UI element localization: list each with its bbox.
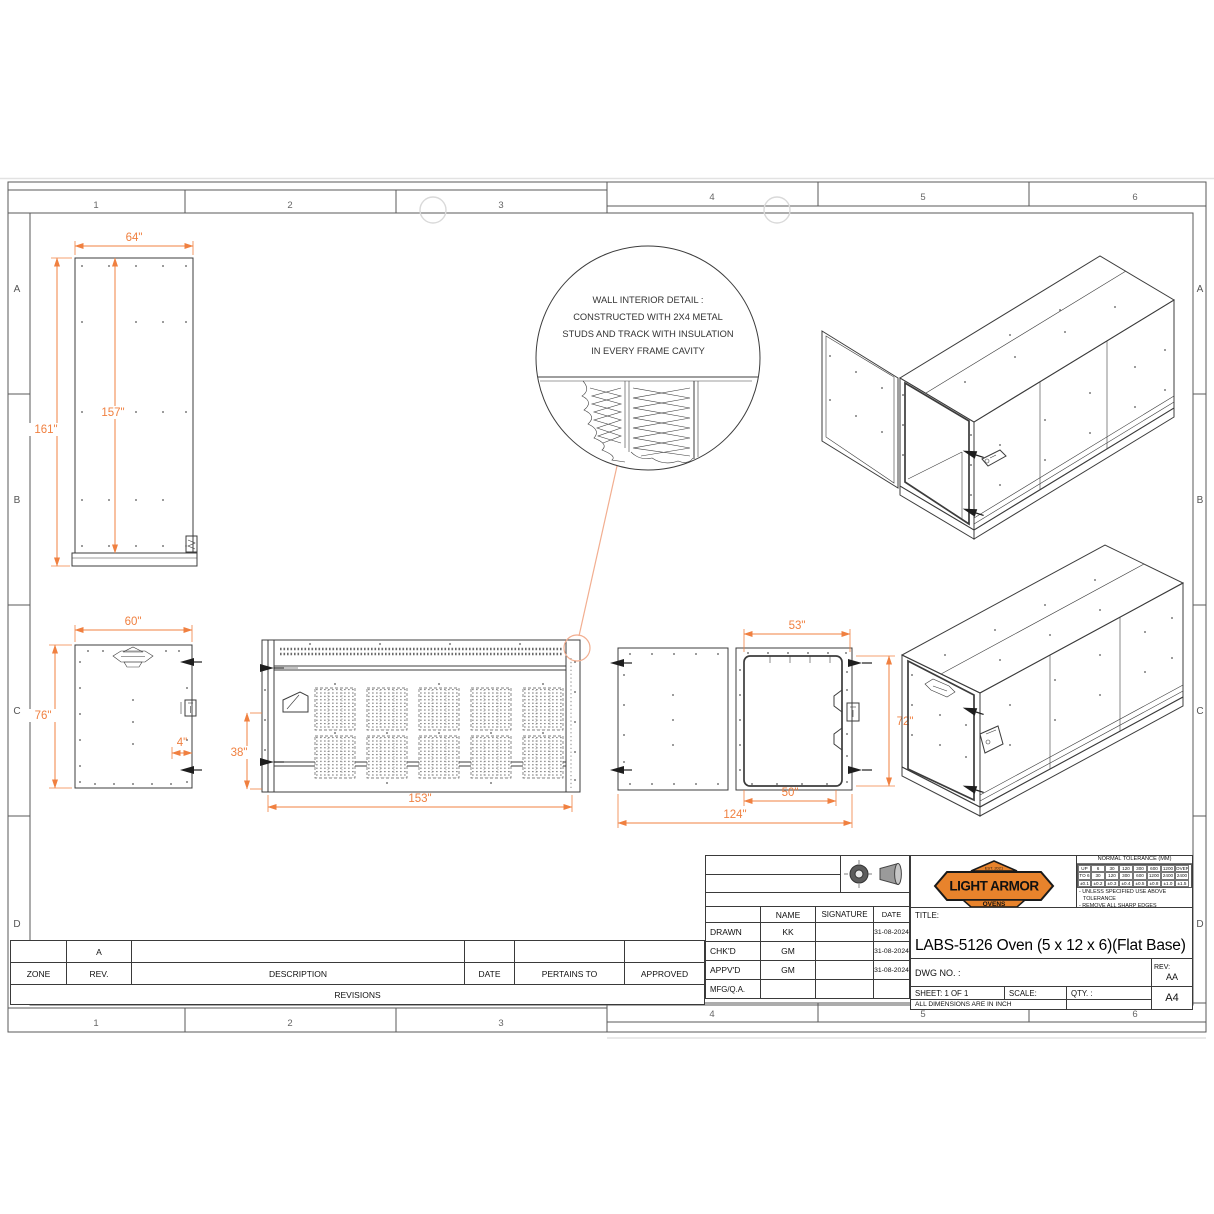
rev-row-zone bbox=[10, 940, 67, 963]
dim-side-height-inner: 157" bbox=[101, 407, 124, 419]
logo-est-text: EST. 2021 bbox=[984, 865, 1003, 870]
drawing-sheet: 1 2 3 4 5 6 1 2 3 4 5 6 A B C D A B C D bbox=[0, 0, 1214, 1214]
zone-top-4: 4 bbox=[709, 192, 714, 203]
rev-label: REV: bbox=[1152, 964, 1170, 971]
plan-view: 53" 72" 50" 124" bbox=[610, 620, 913, 828]
zone-top-2: 2 bbox=[287, 200, 292, 211]
dims-note-cell: ALL DIMENSIONS ARE IN INCH bbox=[910, 999, 1067, 1010]
tolerance-cell: NORMAL TOLERANCE (MM) UP6301203006001200… bbox=[1076, 855, 1193, 908]
zone-bottom-6: 6 bbox=[1132, 1009, 1137, 1020]
row-right-c: C bbox=[1196, 706, 1203, 717]
rev-header-zone: ZONE bbox=[10, 962, 67, 985]
approval-row-date: 31-08-2024 bbox=[873, 941, 910, 961]
dim-door-height: 76" bbox=[35, 710, 52, 722]
hinge bbox=[180, 766, 202, 774]
dwg-no-cell: DWG NO. : bbox=[910, 958, 1152, 987]
logo-cell: EST. 2021 LIGHT ARMOR OVENS bbox=[910, 855, 1077, 908]
drawing-canvas: 1 2 3 4 5 6 1 2 3 4 5 6 A B C D A B C D bbox=[0, 0, 1214, 1214]
approvals-empty-1 bbox=[705, 855, 841, 875]
approvals-header-blank bbox=[705, 906, 761, 923]
rev-header-description: DESCRIPTION bbox=[131, 962, 465, 985]
approval-row-signature bbox=[815, 960, 874, 980]
row-left-d: D bbox=[13, 919, 20, 930]
dim-door-inset: 4" bbox=[177, 737, 187, 749]
row-right-b: B bbox=[1197, 495, 1204, 506]
row-left-c: C bbox=[13, 706, 20, 717]
approval-row-label: CHK'D bbox=[705, 941, 761, 961]
title-label: TITLE: bbox=[915, 911, 939, 920]
rivet-dots bbox=[829, 306, 1166, 496]
tolerance-title: NORMAL TOLERANCE (MM) bbox=[1077, 856, 1192, 864]
light-armor-ovens-logo: EST. 2021 LIGHT ARMOR OVENS bbox=[919, 857, 1069, 907]
detail-text-4: IN EVERY FRAME CAVITY bbox=[591, 346, 705, 356]
approvals-empty-2 bbox=[705, 874, 841, 893]
detail-leader-line bbox=[579, 466, 617, 636]
zone-bottom-4: 4 bbox=[709, 1009, 714, 1020]
door-end-view: 60" 76" 4" bbox=[28, 616, 202, 788]
rivet-dots bbox=[911, 579, 1173, 758]
detail-callout-circle bbox=[564, 635, 590, 661]
scan-hole bbox=[764, 197, 790, 223]
row-left-a: A bbox=[14, 284, 21, 295]
rev-header-pertains: PERTAINS TO bbox=[514, 962, 625, 985]
hinge bbox=[260, 758, 284, 766]
dim-plan-door-top: 53" bbox=[789, 620, 806, 632]
approval-row-name: GM bbox=[760, 941, 816, 961]
dims-note-empty bbox=[1066, 999, 1152, 1010]
rev-value: AA bbox=[1166, 972, 1178, 982]
hinge bbox=[610, 659, 632, 667]
rivet-dots bbox=[79, 650, 188, 785]
zone-top-6: 6 bbox=[1132, 192, 1137, 203]
rev-row-rev: A bbox=[66, 940, 132, 963]
approval-row-signature bbox=[815, 941, 874, 961]
door-dimensions: 60" 76" 4" bbox=[28, 616, 192, 788]
iso-latch bbox=[982, 450, 1006, 466]
revisions-footer: REVISIONS bbox=[10, 984, 705, 1005]
hinge bbox=[961, 505, 984, 519]
scan-hole bbox=[420, 197, 446, 223]
zone-top-5: 5 bbox=[920, 192, 925, 203]
approvals-header-date: DATE bbox=[873, 906, 910, 923]
side-latch bbox=[186, 536, 197, 552]
zone-bottom-1: 1 bbox=[93, 1018, 98, 1029]
rev-header-rev: REV. bbox=[66, 962, 132, 985]
detail-text-1: WALL INTERIOR DETAIL : bbox=[593, 295, 704, 305]
rev-row-date bbox=[464, 940, 515, 963]
rev-row-description bbox=[131, 940, 465, 963]
drawing-title: LABS-5126 Oven (5 x 12 x 6)(Flat Base) bbox=[915, 937, 1186, 955]
zone-bottom-3: 3 bbox=[498, 1018, 503, 1029]
dim-plan-width: 124" bbox=[723, 809, 746, 821]
iso-latch bbox=[980, 726, 1003, 753]
title-cell: TITLE: LABS-5126 Oven (5 x 12 x 6)(Flat … bbox=[910, 907, 1193, 959]
third-angle-projection-icon bbox=[842, 857, 908, 891]
dim-plan-height: 72" bbox=[897, 716, 914, 728]
approval-row-label: MFG/Q.A. bbox=[705, 979, 761, 999]
approval-row-name: KK bbox=[760, 922, 816, 942]
open-door-panel bbox=[822, 331, 898, 488]
approval-row-date: 31-08-2024 bbox=[873, 960, 910, 980]
tolerance-notes: - UNLESS SPECIFIED USE ABOVE TOLERANCE -… bbox=[1077, 888, 1193, 908]
rev-header-date: DATE bbox=[464, 962, 515, 985]
zone-top-1: 1 bbox=[93, 200, 98, 211]
dim-front-width: 153" bbox=[408, 793, 431, 805]
hinge bbox=[260, 664, 284, 672]
plan-dimensions: 53" 72" 50" 124" bbox=[618, 620, 913, 828]
row-left-b: B bbox=[14, 495, 21, 506]
approval-row-signature bbox=[815, 922, 874, 942]
zone-top-3: 3 bbox=[498, 200, 503, 211]
detail-text-2: CONSTRUCTED WITH 2X4 METAL bbox=[573, 312, 723, 322]
dim-plan-door-bottom: 50" bbox=[782, 787, 799, 799]
qty-cell: QTY. : bbox=[1066, 986, 1152, 1000]
door-notch bbox=[834, 728, 842, 750]
projection-symbol-cell bbox=[840, 855, 910, 893]
badge-outline bbox=[113, 647, 153, 667]
hinge bbox=[610, 766, 632, 774]
dim-front-height: 38" bbox=[231, 747, 248, 759]
hinge bbox=[848, 766, 872, 774]
badge-outline bbox=[925, 679, 955, 697]
dim-door-width: 60" bbox=[125, 616, 142, 628]
approval-row-date bbox=[873, 979, 910, 999]
logo-sub-text: OVENS bbox=[982, 900, 1005, 906]
side-elevation-view: 64" 161" 157" bbox=[29, 232, 197, 566]
row-right-d: D bbox=[1196, 919, 1203, 930]
revisions-table: A ZONE REV. DESCRIPTION DATE PERTAINS TO… bbox=[10, 940, 705, 1005]
approval-row-label: APPV'D bbox=[705, 960, 761, 980]
tolerance-table: UP6301203006001200OVER TO 63012030060012… bbox=[1077, 864, 1192, 888]
paper-size-cell: A4 bbox=[1151, 986, 1193, 1010]
hinge bbox=[961, 704, 984, 718]
wall-detail-view: WALL INTERIOR DETAIL : CONSTRUCTED WITH … bbox=[536, 246, 760, 470]
hinge bbox=[961, 447, 984, 461]
approval-row-signature bbox=[815, 979, 874, 999]
logo-main-text: LIGHT ARMOR bbox=[949, 878, 1039, 893]
rev-cell: REV: AA bbox=[1151, 958, 1193, 987]
scale-cell: SCALE: bbox=[1004, 986, 1067, 1000]
title-block: NAME SIGNATURE DATE DRAWN KK 31-08-2024 … bbox=[705, 855, 1193, 1010]
zone-bottom-2: 2 bbox=[287, 1018, 292, 1029]
approvals-header-signature: SIGNATURE bbox=[815, 906, 874, 923]
front-section-view: 38" 153" bbox=[224, 466, 617, 812]
closed-door bbox=[908, 661, 974, 800]
isometric-open-view bbox=[822, 256, 1174, 539]
dim-side-width: 64" bbox=[126, 232, 143, 244]
handle bbox=[283, 692, 308, 712]
approval-row-name: GM bbox=[760, 960, 816, 980]
door-opening bbox=[744, 656, 842, 786]
sheet-cell: SHEET: 1 OF 1 bbox=[910, 986, 1005, 1000]
pending-rev-value: A bbox=[96, 947, 102, 957]
side-dimensions: 64" 161" 157" bbox=[29, 232, 193, 566]
rev-header-approved: APPROVED bbox=[624, 962, 705, 985]
approval-row-name bbox=[760, 979, 816, 999]
approvals-empty-3 bbox=[705, 892, 910, 907]
row-right-a: A bbox=[1197, 284, 1204, 295]
hinge bbox=[848, 659, 872, 667]
detail-text-3: STUDS AND TRACK WITH INSULATION bbox=[562, 329, 733, 339]
zone-bottom-5: 5 bbox=[920, 1009, 925, 1020]
approval-row-date: 31-08-2024 bbox=[873, 922, 910, 942]
hinge bbox=[180, 658, 202, 666]
isometric-closed-view bbox=[902, 545, 1183, 816]
dim-side-height-outer: 161" bbox=[34, 424, 57, 436]
rev-row-approved bbox=[624, 940, 705, 963]
approval-row-label: DRAWN bbox=[705, 922, 761, 942]
door-notch bbox=[834, 690, 842, 712]
rev-row-pertains bbox=[514, 940, 625, 963]
approvals-header-name: NAME bbox=[760, 906, 816, 923]
